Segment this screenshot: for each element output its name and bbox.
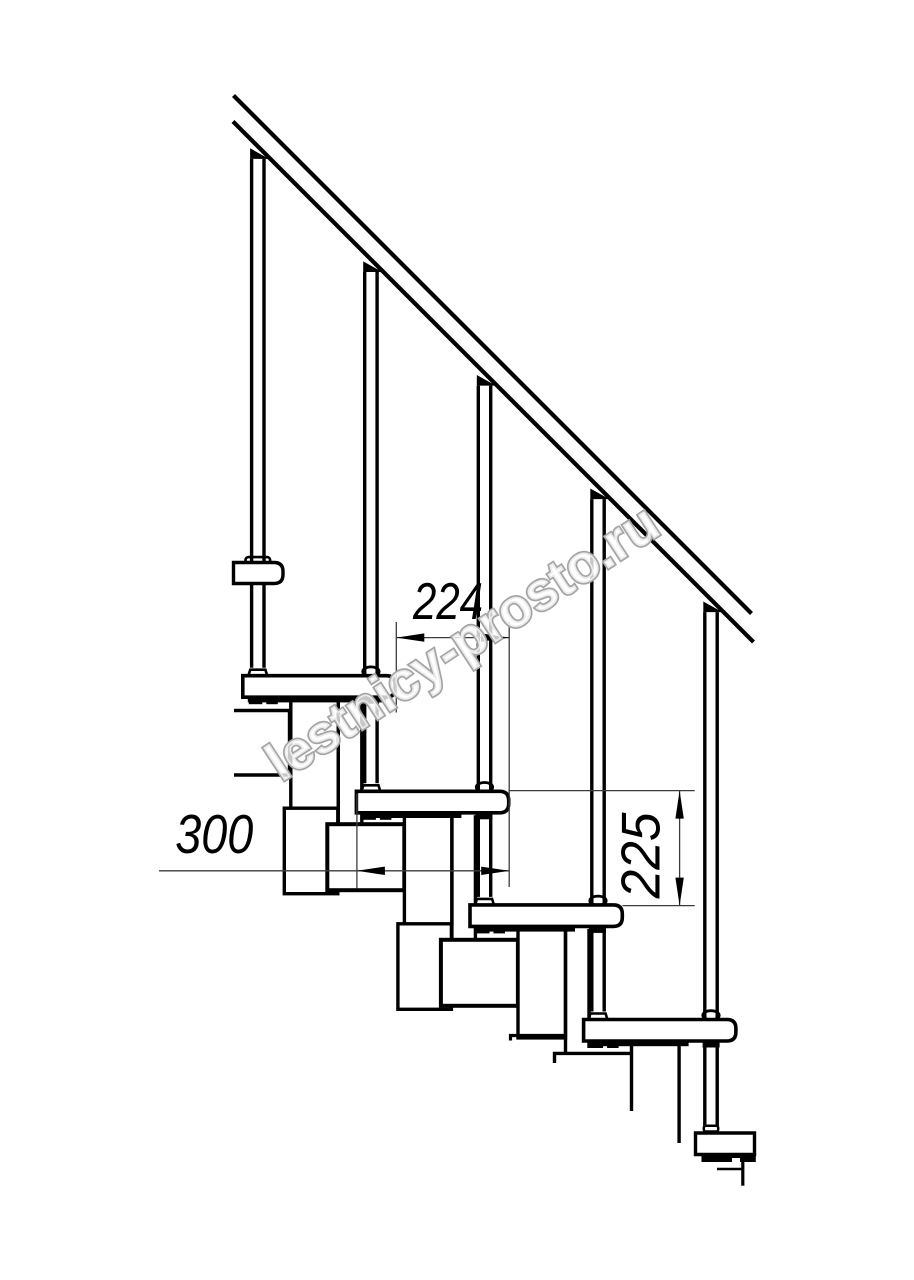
svg-text:225: 225 <box>610 812 672 899</box>
svg-text:300: 300 <box>175 803 253 865</box>
